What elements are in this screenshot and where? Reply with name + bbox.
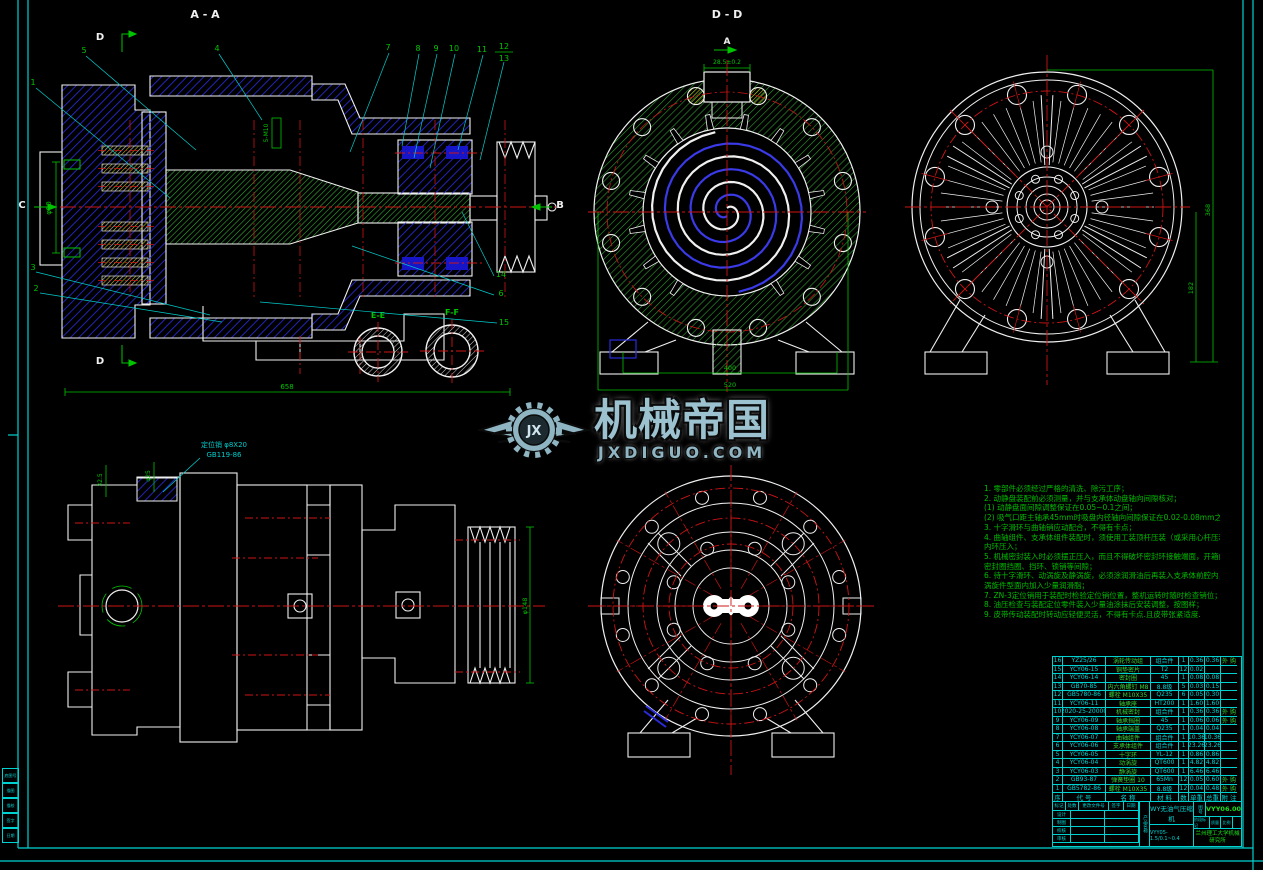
part-name: 轴承挡圈 [1106,717,1151,726]
scale-strip: 阶段标记质量比例 [1194,817,1241,829]
side-pin-boss [137,478,177,501]
part-unit-weight: 10.36 [1189,734,1205,743]
organization: 兰州理工大学机械研究所 [1194,829,1241,846]
signature-role: 设计 [1053,811,1071,819]
drawing-shape [971,131,1015,175]
part-name: 静涡旋 [1106,768,1151,777]
part-code: YCY06-11 [1063,700,1106,709]
drawing-shape [687,88,704,105]
svg-text:15: 15 [499,318,509,327]
part-no: 3 [1053,768,1063,777]
watermark-brand: 机械帝国 [594,400,770,443]
drawing-shape [944,179,1004,195]
part-material: 45 [1151,674,1179,683]
signature-row: 校核 [1053,827,1139,835]
svg-text:1: 1 [30,78,35,87]
part-code: YCY06-03 [1063,768,1106,777]
note-line: 内环压入； [984,542,1220,552]
signature-name-cell [1071,811,1105,819]
edge-box: 签字 [2,813,19,828]
part-total-weight: 0.36 [1205,657,1221,666]
drawing-shape [962,234,1011,272]
drawing-shape [1092,193,1153,201]
drawing-shape [748,616,845,672]
part-qty: 1 [1179,742,1189,751]
drawing-shape [948,224,1005,248]
product-model: VYY05-1.5/0.1~0.4 [1150,825,1193,846]
part-unit-weight: 6.46 [1189,768,1205,777]
part-qty: 1 [1179,708,1189,717]
part-qty: 12 [1179,666,1189,675]
part-unit-weight: 1.60 [1189,700,1205,709]
drawing-shape [617,616,714,672]
part-remark [1221,751,1237,760]
edge-box: 描校 [2,798,19,813]
drawing-shape [947,156,1009,188]
part-code: YZ25/26 [1063,657,1106,666]
drawing-shape [1083,234,1132,272]
part-remark [1221,666,1237,675]
svg-text:D: D [96,32,104,43]
part-qty: 12 [1179,785,1189,794]
drawing-shape [1089,224,1146,248]
part-material: 45 [1151,717,1179,726]
dd-dim-inner: 400 [724,364,736,372]
part-name: 机械密封 [1106,708,1151,717]
part-remark [1221,742,1237,751]
part-no: 15 [1053,666,1063,675]
drawing-shape [1053,252,1061,313]
part-no: 11 [1053,700,1063,709]
svg-text:13: 13 [499,54,509,63]
part-total-weight: 0.48 [1205,785,1221,794]
scale-strip-cell: 比例 [1221,817,1233,828]
notes-block: 1. 零部件必须经过严格的清洗、除污工序；2. 动静盘装配前必须测量，并与支承体… [984,484,1220,620]
part-name: 动涡旋 [1106,759,1151,768]
part-unit-weight: 0.06 [1189,717,1205,726]
parts-list-row: 16 YZ25/26 涡轮传动组 组合件 1 0.36 0.36 外 购 [1053,657,1241,666]
drawing-shape [953,146,1012,184]
signature-date-cell [1105,827,1139,835]
detail-e-circle: E-E [348,311,408,382]
part-qty: 1 [1179,768,1189,777]
part-material: 65Mn [1151,776,1179,785]
parts-list-row: 14 YCY06-14 密封圈 45 1 0.08 0.08 [1053,674,1241,683]
revision-strip-cell: 更改文件号 [1079,802,1109,811]
drawing-shape [1084,156,1146,188]
part-remark: 外 购 [1221,776,1237,785]
parts-list-row: 1 GB5782-86 螺栓 M10X35 8.8级 12 0.04 0.48 … [1053,785,1241,794]
note-line: 1. 零部件必须经过严格的清洗、除污工序； [984,484,1220,494]
part-total-weight: 1.60 [1205,700,1221,709]
part-remark: 外 购 [1221,717,1237,726]
part-no: 5 [1053,751,1063,760]
part-qty: 1 [1179,717,1189,726]
parts-list-row: 6 YCY06-06 支承体组件 组合件 1 23.26 23.26 [1053,742,1241,751]
parts-list-row: 8 YCY06-08 轴承端盖 Q235 1 0.04 0.04 [1053,725,1241,734]
signature-row: 制图 [1053,819,1139,827]
watermark: JX 机械帝国 JXDIGUO.COM [478,396,838,464]
revision-strip-cell: 处数 [1066,802,1079,811]
part-code: YCY06-05 [1063,751,1106,760]
note-line: 3. 十字滑环与曲轴销应动配合，不得有卡点； [984,523,1220,533]
part-material: 组合件 [1151,657,1179,666]
dd-dim-top: 28.5±0.2 [713,59,741,66]
drawing-shape [1084,226,1146,258]
drawing-shape [982,122,1020,171]
part-name: 弹簧垫圈 10 [1106,776,1151,785]
drawing-shape [741,623,797,720]
part-no: 13 [1053,683,1063,692]
edge-box: 底图号 [2,768,19,783]
signature-date-cell [1105,835,1139,843]
part-qty: 1 [1179,700,1189,709]
part-qty: 1 [1179,657,1189,666]
part-qty: 1 [1179,759,1189,768]
part-code: YCY06-04 [1063,759,1106,768]
part-unit-weight: 0.36 [1189,657,1205,666]
revision-strip-cell: 日期 [1124,802,1139,811]
side-centerlines [58,518,545,695]
part-qty: 1 [1179,751,1189,760]
drawing-shape [1059,104,1075,164]
note-line: 6. 待十字滑环、动涡旋及静涡旋，必须涂润滑油后再装入支承体前腔内， [984,571,1220,581]
part-total-weight: 0.15 [1205,683,1221,692]
product-label: 产品名称 [1140,802,1150,846]
housing-upper-arm [312,84,470,134]
revision-strip-cell: 签字 [1109,802,1124,811]
side-outline [68,473,515,742]
edge-box: 日期 [2,828,19,843]
parts-list-row: 10 2020-25-20000 机械密封 组合件 1 0.36 0.36 外 … [1053,708,1241,717]
drawing-shape [941,213,1002,221]
watermark-domain: JXDIGUO.COM [598,445,766,461]
part-code: YCY06-07 [1063,734,1106,743]
svg-text:9: 9 [433,44,438,53]
revision-strip-cell: 标记 [1053,802,1066,811]
part-name: 铜垫密片 [1106,666,1151,675]
drawing-shape [1090,219,1150,235]
drawing-shape [696,491,709,504]
part-code: YCY06-08 [1063,725,1106,734]
part-total-weight [1205,666,1221,675]
part-total-weight: 0.86 [1205,751,1221,760]
drawing-shape [948,166,1005,190]
side-leader-line1: 定位销 φ8X20 [201,440,247,449]
svg-text:B: B [556,200,564,211]
part-no: 2 [1053,776,1063,785]
svg-text:3: 3 [30,263,35,272]
parts-list-row: 11 YCY06-11 轴承座 HT200 1 1.60 1.60 [1053,700,1241,709]
part-material: 8.8级 [1151,683,1179,692]
part-code: YCY06-14 [1063,674,1106,683]
part-total-weight: 0.06 [1205,717,1221,726]
drawing-shape [1082,146,1141,184]
note-line: 9. 皮带传动装配时转动应轻便灵活，不得有卡点.且皮带张紧适度. [984,610,1220,620]
note-line: 8. 油压检查与装配定位零件装入少量油涂抹后安装调整，按图样； [984,600,1220,610]
part-no: 4 [1053,759,1063,768]
rear-view: 368 182 [905,55,1218,385]
side-leader-line2: GB119-86 [206,451,242,459]
part-no: 8 [1053,725,1063,734]
part-total-weight: 6.46 [1205,768,1221,777]
parts-list-row: 7 YCY06-07 曲轴组件 组合件 1 10.36 10.36 [1053,734,1241,743]
drawing-shape [1059,250,1075,310]
part-name: 轴承座 [1106,700,1151,709]
drawing-shape [616,628,629,641]
housing-lower-arm [312,280,470,330]
drawing-shape [748,540,845,596]
svg-text:2: 2 [33,284,38,293]
part-code: YCY06-09 [1063,717,1106,726]
part-name: 支承体组件 [1106,742,1151,751]
aa-plug-label: 5-M10 [263,123,270,142]
drawing-shape [1053,101,1061,162]
parts-list-row: 12 GB5780-86 螺栓 M10X35 Q235 6 0.05 0.30 [1053,691,1241,700]
part-code: GB5780-86 [1063,691,1106,700]
part-name: 螺栓 M10X35 [1106,691,1151,700]
part-remark [1221,691,1237,700]
signature-row: 设计 [1053,811,1139,819]
part-remark: 外 购 [1221,657,1237,666]
section-dd-view: D - D A [588,8,866,392]
part-no: 1 [1053,785,1063,794]
part-unit-weight: 0.04 [1189,725,1205,734]
signature-date-cell [1105,819,1139,827]
rear-dim-outer: 368 [1204,204,1212,216]
svg-text:C: C [18,200,25,211]
part-qty: 1 [1179,734,1189,743]
part-remark [1221,683,1237,692]
part-code: YCY06-06 [1063,742,1106,751]
side-dim2: φ25 [145,470,152,482]
part-name: 十字环 [1106,751,1151,760]
part-name: 螺栓 M10X35 [1106,785,1151,794]
part-name: 涡轮传动组 [1106,657,1151,666]
part-no: 7 [1053,734,1063,743]
svg-text:6: 6 [498,289,503,298]
part-unit-weight: 0.36 [1189,708,1205,717]
section-aa-title: A - A [190,8,220,21]
part-material: Q235 [1151,691,1179,700]
part-remark [1221,674,1237,683]
signature-name-cell [1071,827,1105,835]
part-code: GB70-85 [1063,683,1106,692]
signature-role: 校核 [1053,827,1071,835]
svg-text:10: 10 [449,44,459,53]
rotor-bar [142,112,166,304]
drawing-no: VYY06.00 [1206,802,1241,816]
drawing-shape [1033,252,1041,313]
logo-monogram: JX [526,424,542,439]
part-unit-weight: 0.02 [1189,666,1205,675]
housing-lower [150,318,312,338]
part-remark: 外 购 [1221,785,1237,794]
part-code: GB93-87 [1063,776,1106,785]
parts-list: 16 YZ25/26 涡轮传动组 组合件 1 0.36 0.36 外 购 15 … [1052,656,1242,803]
signature-row: 审核 [1053,835,1139,843]
part-no: 16 [1053,657,1063,666]
part-qty: 5 [1179,683,1189,692]
part-name: 密封圈 [1106,674,1151,683]
part-remark [1221,700,1237,709]
part-unit-weight: 0.86 [1189,751,1205,760]
part-material: 组合件 [1151,734,1179,743]
part-remark [1221,759,1237,768]
svg-text:4: 4 [214,44,219,53]
part-remark: 外 购 [1221,708,1237,717]
part-material: QT600 [1151,768,1179,777]
drawing-shape [617,540,714,596]
side-dim-pulley: φ148 [521,598,529,615]
drawing-shape [1083,142,1132,180]
aa-dim-bottom: 658 [280,383,293,391]
parts-list-row: 5 YCY06-05 十字环 YL-12 1 0.86 0.86 [1053,751,1241,760]
drawing-shape [941,193,1002,201]
part-qty: 6 [1179,691,1189,700]
part-qty: 12 [1179,776,1189,785]
drawing-shape [741,492,797,589]
part-unit-weight: 23.26 [1189,742,1205,751]
part-material: 8.8级 [1151,785,1179,794]
drawing-shape [833,628,846,641]
part-total-weight: 10.36 [1205,734,1221,743]
side-dim1: 32.5 [97,473,104,487]
part-remark [1221,725,1237,734]
parts-list-row: 15 YCY06-15 铜垫密片 T2 12 0.02 [1053,666,1241,675]
drawing-shape [1033,101,1041,162]
parts-list-row: 3 YCY06-03 静涡旋 QT600 1 6.46 6.46 [1053,768,1241,777]
part-material: QT600 [1151,759,1179,768]
part-material: T2 [1151,666,1179,675]
shaft [358,193,470,223]
section-aa-view: A - A [18,8,563,396]
part-no: 6 [1053,742,1063,751]
part-material: 组合件 [1151,708,1179,717]
scale-strip-cell: 质量 [1210,817,1221,828]
part-no: 9 [1053,717,1063,726]
dd-arrow-label: A [724,37,731,47]
part-name: 曲轴组件 [1106,734,1151,743]
part-material: YL-12 [1151,751,1179,760]
front-centerlines [588,465,874,775]
part-unit-weight: 0.03 [1189,683,1205,692]
rear-dim-inner: 182 [1187,282,1195,294]
part-unit-weight: 0.08 [1189,674,1205,683]
note-line: 涡旋件型面内加入少量润滑脂； [984,581,1220,591]
drawing-shape [1074,122,1112,171]
part-unit-weight: 0.05 [1189,776,1205,785]
note-line: (2) 吸气口距主轴承45mm时吸盘内径轴向间隙保证在0.02-0.08mm之间… [984,513,1220,523]
drawing-shape [1079,131,1123,175]
part-total-weight: 0.08 [1205,674,1221,683]
dd-view-arrow [714,47,736,53]
drawing-shape [1019,104,1035,164]
part-no: 14 [1053,674,1063,683]
drawing-shape [947,226,1009,258]
signature-name-cell [1071,835,1105,843]
dd-dim-outer: 520 [724,381,736,389]
drawing-shape [1089,166,1146,190]
title-block: 标记处数更改文件号签字日期 设计 制图 校核 [1052,801,1242,847]
note-line: 5. 机械密封装入时必须摆正压入，而且不得破坏密封环接触端面，开箱前清洗及 [984,552,1220,562]
parts-list-row: 2 GB93-87 弹簧垫圈 10 65Mn 12 0.05 0.60 外 购 [1053,776,1241,785]
part-name: 内六角螺钉 M8 [1106,683,1151,692]
drawing-shape [665,492,721,589]
product-name: WY无油气压缩机 [1150,802,1193,825]
part-unit-weight: 0.05 [1189,691,1205,700]
drawing-shape [982,243,1020,292]
svg-text:5: 5 [81,46,86,55]
part-material: Q235 [1151,725,1179,734]
signature-name-cell [1071,819,1105,827]
svg-text:D: D [96,356,104,367]
cad-drawing-sheet: { "watermark": { "brand": "机械帝国", "domai… [0,0,1263,870]
detail-f-label: F-F [445,308,459,317]
scale-strip-cell: 阶段标记 [1194,817,1210,828]
part-material: 组合件 [1151,742,1179,751]
part-total-weight: 0.04 [1205,725,1221,734]
signature-date-cell [1105,811,1139,819]
revision-strip: 标记处数更改文件号签字日期 [1053,802,1139,811]
note-line: 7. ZN-3定位销用于装配时检验定位销位置，整机运转时随时检查销位； [984,591,1220,601]
drawing-shape [1019,250,1035,310]
drawing-shape [944,219,1004,235]
drawing-shape [962,142,1011,180]
drawing-shape [1090,179,1150,195]
part-total-weight: 0.60 [1205,776,1221,785]
sheet-edge-boxes: 底图号描图描校签字日期 [2,768,19,843]
aa-dim-left: φ90 [45,201,53,215]
section-dd-title: D - D [712,8,743,21]
part-code: 2020-25-20000 [1063,708,1106,717]
front-view [588,465,874,775]
part-unit-weight: 4.82 [1189,759,1205,768]
svg-text:8: 8 [415,44,420,53]
drawing-shape [665,623,721,720]
drawing-shape [1092,213,1153,221]
housing-upper [150,76,312,96]
part-name: 轴承端盖 [1106,725,1151,734]
drawing-shape [748,542,761,555]
svg-text:11: 11 [477,45,487,54]
signature-role: 制图 [1053,819,1071,827]
side-view: 定位销 φ8X20 GB119-86 32.5 φ25 φ148 [58,440,545,742]
title-block-signatures: 标记处数更改文件号签字日期 设计 制图 校核 [1053,802,1140,846]
svg-text:7: 7 [385,43,390,52]
note-line: (1) 动静盘面间隙调整保证在0.05~0.1之间； [984,503,1220,513]
part-remark [1221,734,1237,743]
svg-text:12: 12 [499,42,509,51]
part-remark [1221,768,1237,777]
signature-role: 审核 [1053,835,1071,843]
note-line: 密封圈挡圈、挡环、锁销等间隙； [984,562,1220,572]
part-total-weight: 4.82 [1205,759,1221,768]
part-no: 10 [1053,708,1063,717]
parts-list-row: 13 GB70-85 内六角螺钉 M8 8.8级 5 0.03 0.15 [1053,683,1241,692]
part-unit-weight: 0.04 [1189,785,1205,794]
drawing-shape [1082,230,1141,268]
part-no: 12 [1053,691,1063,700]
part-code: YCY06-15 [1063,666,1106,675]
part-qty: 1 [1179,725,1189,734]
drawing-shape [1074,243,1112,292]
part-code: GB5782-86 [1063,785,1106,794]
parts-list-row: 4 YCY06-04 动涡旋 QT600 1 4.82 4.82 [1053,759,1241,768]
parts-list-row: 9 YCY06-09 轴承挡圈 45 1 0.06 0.06 外 购 [1053,717,1241,726]
watermark-logo: JX [478,396,590,464]
drawing-no-label: 图号 [1194,802,1206,816]
